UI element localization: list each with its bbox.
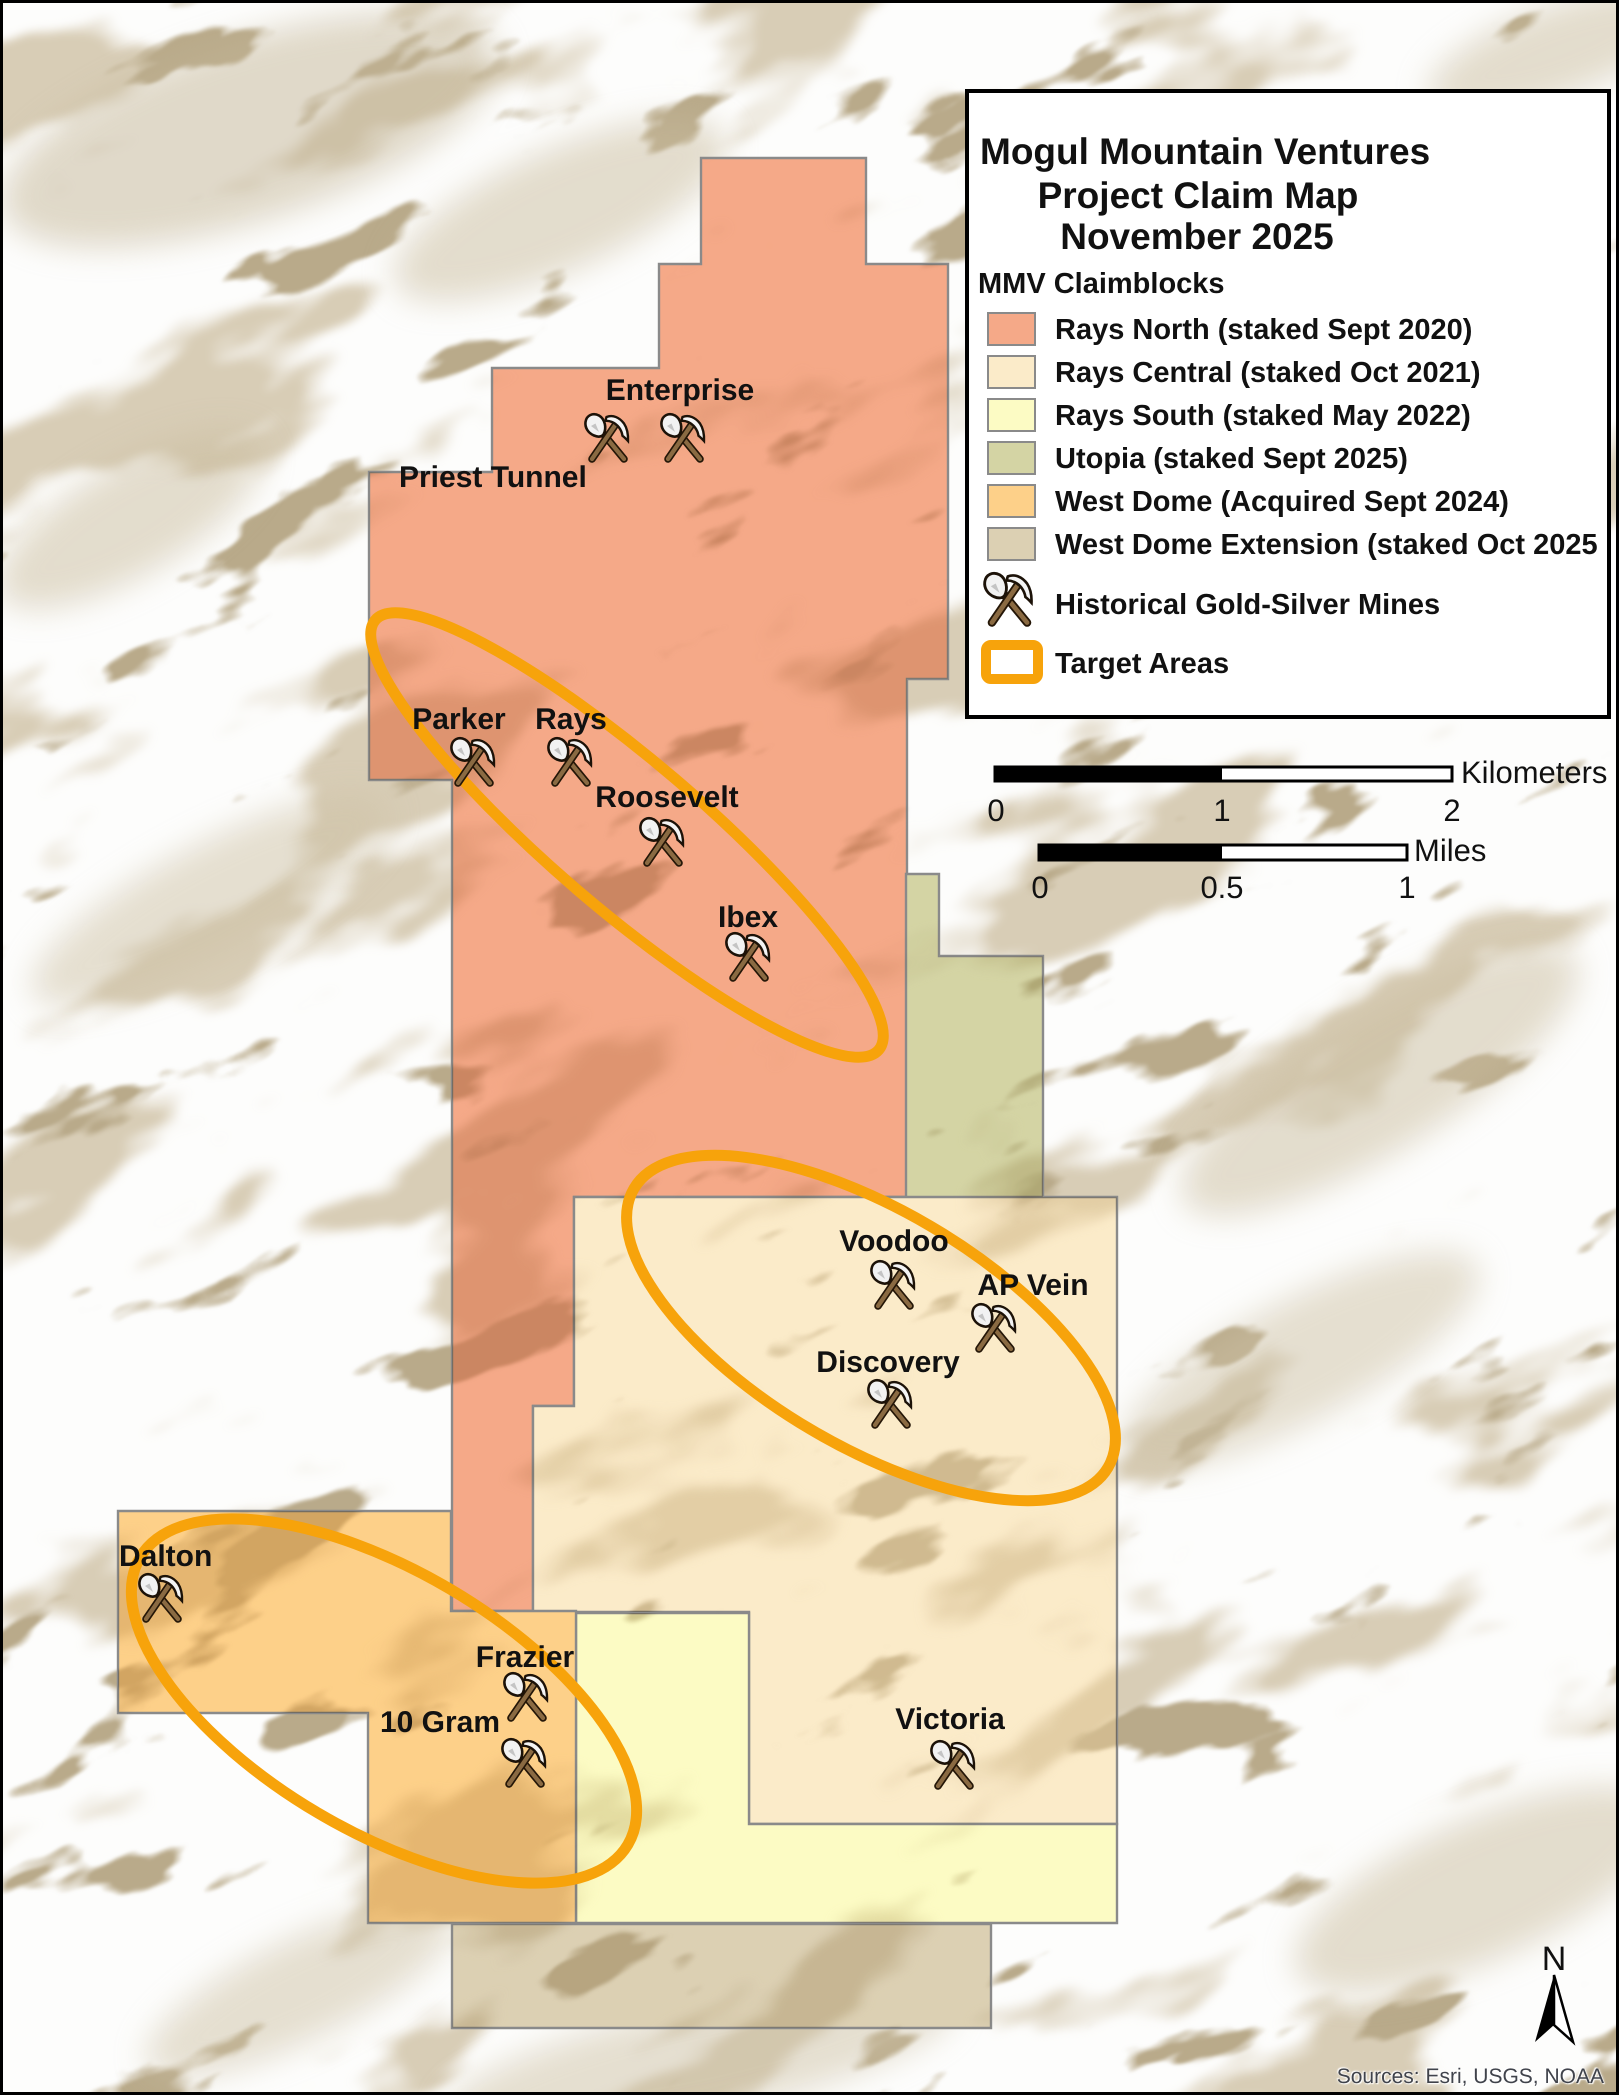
svg-text:Parker: Parker xyxy=(412,703,506,736)
svg-text:Historical Gold-Silver Mines: Historical Gold-Silver Mines xyxy=(1055,589,1440,621)
svg-text:West Dome Extension (staked Oc: West Dome Extension (staked Oct 2025 xyxy=(1055,529,1598,561)
svg-text:Project Claim Map: Project Claim Map xyxy=(1038,175,1359,216)
svg-text:0: 0 xyxy=(987,793,1004,828)
svg-text:0.5: 0.5 xyxy=(1200,870,1243,905)
svg-text:2: 2 xyxy=(1443,793,1460,828)
svg-text:1: 1 xyxy=(1213,793,1230,828)
svg-text:Miles: Miles xyxy=(1414,833,1486,868)
svg-text:November 2025: November 2025 xyxy=(1060,216,1334,257)
svg-text:Enterprise: Enterprise xyxy=(606,374,754,407)
svg-text:Priest Tunnel: Priest Tunnel xyxy=(399,461,587,494)
svg-text:10 Gram: 10 Gram xyxy=(380,1706,500,1739)
svg-text:Target Areas: Target Areas xyxy=(1055,648,1229,680)
svg-text:Rays North (staked Sept 2020): Rays North (staked Sept 2020) xyxy=(1055,314,1472,346)
svg-text:Rays: Rays xyxy=(535,703,607,736)
svg-text:Frazier: Frazier xyxy=(476,1641,575,1674)
svg-text:Roosevelt: Roosevelt xyxy=(595,781,738,814)
svg-text:Discovery: Discovery xyxy=(816,1346,960,1379)
svg-text:Kilometers: Kilometers xyxy=(1461,755,1607,790)
svg-text:1: 1 xyxy=(1398,870,1415,905)
svg-text:Victoria: Victoria xyxy=(895,1703,1005,1736)
svg-text:Rays Central (staked Oct 2021): Rays Central (staked Oct 2021) xyxy=(1055,357,1481,389)
svg-text:Dalton: Dalton xyxy=(119,1540,212,1573)
svg-text:Mogul Mountain Ventures: Mogul Mountain Ventures xyxy=(980,131,1430,172)
svg-text:0: 0 xyxy=(1031,870,1048,905)
svg-text:West Dome (Acquired Sept 2024): West Dome (Acquired Sept 2024) xyxy=(1055,486,1509,518)
svg-text:Sources: Esri, USGS, NOAA: Sources: Esri, USGS, NOAA xyxy=(1337,2065,1604,2088)
svg-text:N: N xyxy=(1542,1940,1567,1978)
svg-text:Voodoo: Voodoo xyxy=(839,1225,948,1258)
svg-text:Utopia (staked Sept 2025): Utopia (staked Sept 2025) xyxy=(1055,443,1408,475)
svg-text:MMV Claimblocks: MMV Claimblocks xyxy=(978,268,1225,300)
svg-text:Rays South (staked May 2022): Rays South (staked May 2022) xyxy=(1055,400,1471,432)
svg-text:Ibex: Ibex xyxy=(718,901,778,934)
svg-text:AP Vein: AP Vein xyxy=(977,1269,1088,1302)
